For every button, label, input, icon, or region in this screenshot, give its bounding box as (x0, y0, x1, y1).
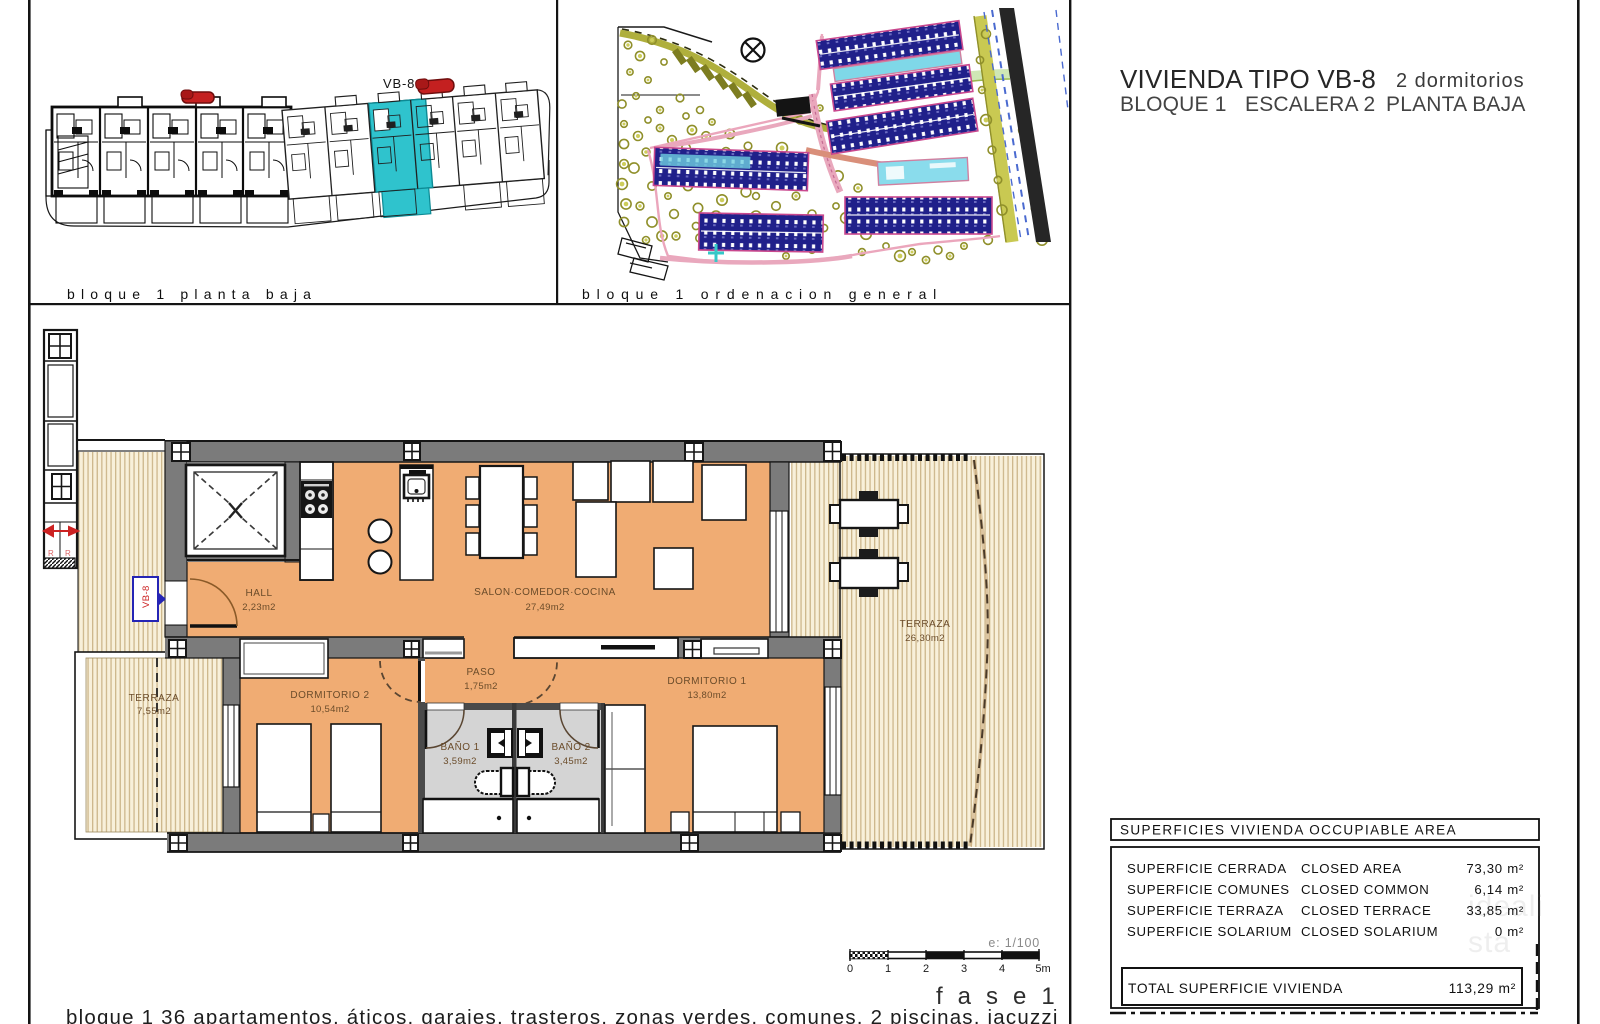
svg-text:VB-8: VB-8 (141, 585, 152, 608)
svg-text:SUPERFICIE SOLARIUM: SUPERFICIE SOLARIUM (1127, 924, 1292, 939)
svg-text:SUPERFICIE CERRADA: SUPERFICIE CERRADA (1127, 861, 1287, 876)
svg-text:e: 1/100: e: 1/100 (988, 936, 1040, 950)
svg-text:2: 2 (923, 963, 929, 975)
svg-text:27,49m2: 27,49m2 (525, 602, 564, 613)
svg-text:26,30m2: 26,30m2 (905, 633, 945, 644)
svg-text:TOTAL SUPERFICIE VIVIENDA: TOTAL SUPERFICIE VIVIENDA (1128, 981, 1343, 996)
svg-text:PASO: PASO (466, 667, 495, 678)
svg-text:TERRAZA: TERRAZA (129, 693, 180, 704)
svg-text:bloque 1 planta baja: bloque 1 planta baja (67, 286, 317, 302)
svg-text:TERRAZA: TERRAZA (900, 619, 951, 630)
svg-text:2 dormitorios: 2 dormitorios (1396, 70, 1525, 92)
svg-text:R: R (65, 549, 71, 558)
svg-text:R: R (48, 549, 54, 558)
svg-text:BAÑO 2: BAÑO 2 (551, 740, 590, 753)
svg-text:3,59m2: 3,59m2 (443, 756, 477, 767)
svg-text:CLOSED AREA: CLOSED AREA (1301, 861, 1402, 876)
svg-text:73,30 m²: 73,30 m² (1466, 861, 1524, 876)
svg-text:3: 3 (961, 963, 967, 975)
svg-text:ESCALERA 2: ESCALERA 2 (1245, 93, 1375, 116)
svg-text:1: 1 (885, 963, 891, 975)
svg-text:SALON·COMEDOR·COCINA: SALON·COMEDOR·COCINA (474, 587, 616, 598)
svg-text:bloque 1 36 apartamentos, át: bloque 1 36 apartamentos, áticos, garaje… (66, 1006, 1059, 1024)
svg-text:ideali: ideali (1468, 890, 1544, 923)
svg-text:4: 4 (999, 963, 1005, 975)
svg-text:1,75m2: 1,75m2 (464, 681, 498, 692)
svg-text:CLOSED TERRACE: CLOSED TERRACE (1301, 903, 1431, 918)
svg-text:DORMITORIO 1: DORMITORIO 1 (667, 676, 746, 687)
svg-text:SUPERFICIE COMUNES: SUPERFICIE COMUNES (1127, 882, 1290, 897)
svg-text:PLANTA BAJA: PLANTA BAJA (1386, 93, 1526, 116)
svg-text:SUPERFICIES VIVIENDA OCCUPIA: SUPERFICIES VIVIENDA OCCUPIABLE AREA (1120, 823, 1457, 838)
svg-text:VIVIENDA TIPO VB-8: VIVIENDA TIPO VB-8 (1120, 64, 1376, 94)
svg-text:3,45m2: 3,45m2 (554, 756, 588, 767)
svg-text:CLOSED COMMON: CLOSED COMMON (1301, 882, 1430, 897)
svg-text:0: 0 (847, 963, 853, 975)
svg-text:2,23m2: 2,23m2 (242, 602, 276, 613)
svg-text:7,55m2: 7,55m2 (137, 706, 171, 717)
svg-text:SUPERFICIE TERRAZA: SUPERFICIE TERRAZA (1127, 903, 1284, 918)
svg-text:113,29 m²: 113,29 m² (1449, 981, 1516, 996)
svg-text:DORMITORIO 2: DORMITORIO 2 (290, 690, 369, 701)
svg-text:CLOSED SOLARIUM: CLOSED SOLARIUM (1301, 924, 1438, 939)
svg-text:VB-8: VB-8 (383, 76, 415, 91)
svg-text:10,54m2: 10,54m2 (310, 704, 349, 715)
svg-text:5m: 5m (1035, 963, 1050, 975)
svg-text:BAÑO 1: BAÑO 1 (440, 740, 479, 753)
svg-text:sta: sta (1468, 926, 1511, 959)
svg-text:BLOQUE 1: BLOQUE 1 (1120, 93, 1227, 116)
svg-text:13,80m2: 13,80m2 (687, 690, 726, 701)
svg-text:bloque 1 ordenacion general: bloque 1 ordenacion general (582, 286, 943, 302)
svg-text:HALL: HALL (245, 588, 272, 599)
